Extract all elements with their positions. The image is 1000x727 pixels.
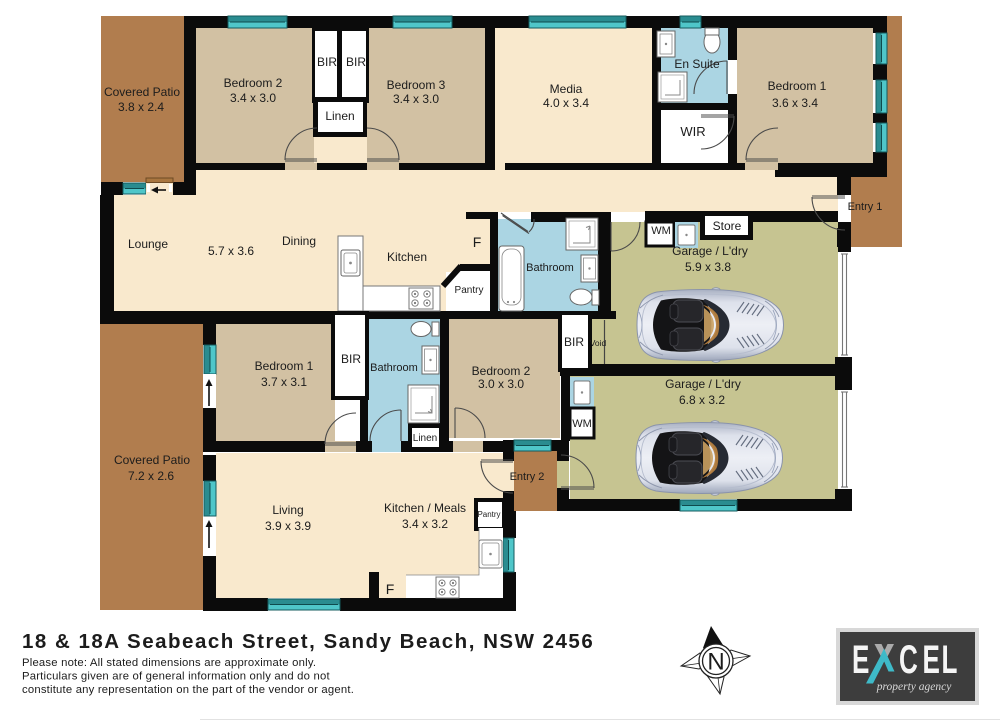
svg-text:Store: Store xyxy=(713,219,742,233)
svg-text:Please note: All stated dimens: Please note: All stated dimensions are a… xyxy=(22,657,316,669)
svg-text:Linen: Linen xyxy=(413,433,437,444)
svg-text:3.8 x 2.4: 3.8 x 2.4 xyxy=(118,100,164,114)
svg-text:BIR: BIR xyxy=(317,55,337,69)
svg-text:constitute any representation: constitute any representation on the par… xyxy=(22,684,354,696)
svg-text:5.9 x 3.8: 5.9 x 3.8 xyxy=(685,260,731,274)
svg-text:Bedroom 3: Bedroom 3 xyxy=(387,78,446,92)
svg-text:3.6 x 3.4: 3.6 x 3.4 xyxy=(772,96,818,110)
svg-text:Particulars given are of gener: Particulars given are of general informa… xyxy=(22,671,330,683)
svg-text:3.9 x 3.9: 3.9 x 3.9 xyxy=(265,519,311,533)
svg-text:3.4 x 3.2: 3.4 x 3.2 xyxy=(402,517,448,531)
svg-text:Lounge: Lounge xyxy=(128,237,168,251)
svg-text:BIR: BIR xyxy=(341,352,361,366)
svg-text:Kitchen: Kitchen xyxy=(387,250,427,264)
svg-text:Bedroom 2: Bedroom 2 xyxy=(472,364,531,378)
svg-text:WM: WM xyxy=(651,225,671,237)
svg-text:Bedroom 1: Bedroom 1 xyxy=(255,359,314,373)
svg-text:Pantry: Pantry xyxy=(455,285,484,296)
svg-text:3.7 x 3.1: 3.7 x 3.1 xyxy=(261,375,307,389)
svg-text:N: N xyxy=(707,649,724,676)
svg-text:L: L xyxy=(942,639,958,683)
svg-text:3.0 x 3.0: 3.0 x 3.0 xyxy=(478,377,524,391)
svg-text:Pantry: Pantry xyxy=(477,510,500,519)
svg-text:F: F xyxy=(386,581,395,597)
svg-text:Bathroom: Bathroom xyxy=(526,262,574,274)
svg-text:3.4 x 3.0: 3.4 x 3.0 xyxy=(230,91,276,105)
svg-text:Dining: Dining xyxy=(282,234,316,248)
svg-text:7.2 x 2.6: 7.2 x 2.6 xyxy=(128,469,174,483)
svg-text:5.7 x 3.6: 5.7 x 3.6 xyxy=(208,244,254,258)
svg-text:E: E xyxy=(852,639,869,683)
svg-text:En Suite: En Suite xyxy=(674,57,720,71)
svg-text:3.4 x 3.0: 3.4 x 3.0 xyxy=(393,92,439,106)
svg-text:Kitchen / Meals: Kitchen / Meals xyxy=(384,501,466,515)
svg-text:18 & 18A Seabeach Street, Sand: 18 & 18A Seabeach Street, Sandy Beach, N… xyxy=(22,630,594,653)
svg-text:C: C xyxy=(899,639,918,683)
svg-text:4.0 x 3.4: 4.0 x 3.4 xyxy=(543,96,589,110)
svg-text:Linen: Linen xyxy=(325,109,354,123)
svg-text:WIR: WIR xyxy=(680,124,705,139)
svg-text:Living: Living xyxy=(272,503,303,517)
svg-text:6.8 x 3.2: 6.8 x 3.2 xyxy=(679,393,725,407)
svg-text:WM: WM xyxy=(572,418,592,430)
svg-text:E: E xyxy=(923,639,940,683)
svg-text:Covered Patio: Covered Patio xyxy=(104,85,180,99)
svg-text:Garage / L'dry: Garage / L'dry xyxy=(672,244,748,258)
svg-text:Bedroom 1: Bedroom 1 xyxy=(768,79,827,93)
svg-text:property agency: property agency xyxy=(876,681,953,693)
svg-text:Void: Void xyxy=(590,338,607,348)
svg-text:Bedroom 2: Bedroom 2 xyxy=(224,76,283,90)
svg-text:F: F xyxy=(473,234,482,250)
svg-text:Media: Media xyxy=(550,82,583,96)
svg-text:Garage / L'dry: Garage / L'dry xyxy=(665,377,741,391)
svg-text:Covered Patio: Covered Patio xyxy=(114,453,190,467)
svg-text:Entry 1: Entry 1 xyxy=(848,201,883,213)
svg-text:BIR: BIR xyxy=(346,55,366,69)
svg-text:Entry 2: Entry 2 xyxy=(510,471,545,483)
svg-text:BIR: BIR xyxy=(564,335,584,349)
svg-text:Bathroom: Bathroom xyxy=(370,362,418,374)
